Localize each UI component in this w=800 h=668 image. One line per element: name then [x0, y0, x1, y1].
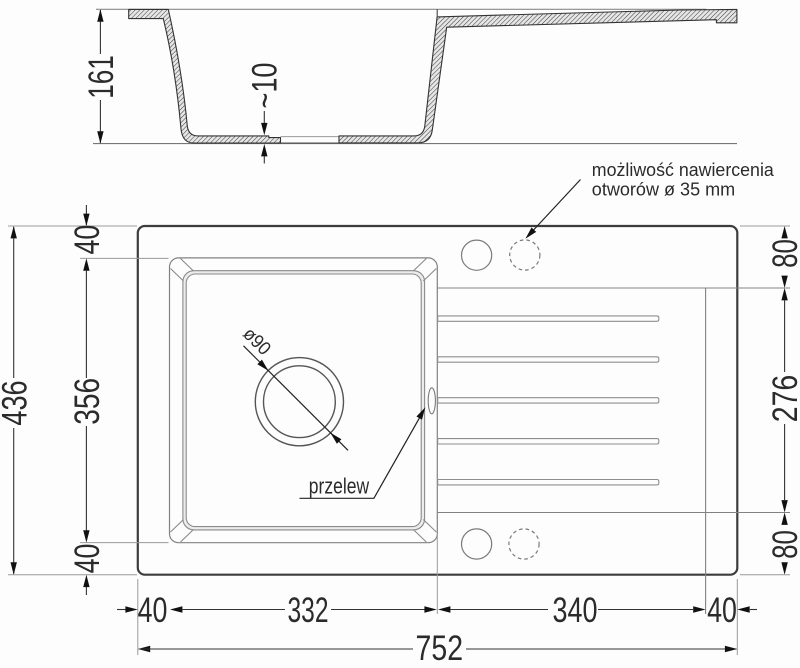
svg-text:40: 40 — [68, 544, 107, 574]
svg-text:40: 40 — [138, 591, 168, 630]
svg-text:161: 161 — [82, 55, 121, 99]
svg-text:436: 436 — [0, 380, 34, 425]
svg-text:40: 40 — [707, 591, 737, 630]
svg-text:~10: ~10 — [245, 63, 284, 109]
svg-text:możliwość nawiercenia: możliwość nawiercenia — [592, 159, 775, 180]
svg-text:przelew: przelew — [309, 474, 370, 499]
svg-text:276: 276 — [766, 375, 800, 423]
svg-text:340: 340 — [553, 591, 598, 630]
svg-text:40: 40 — [68, 225, 107, 255]
svg-text:356: 356 — [68, 378, 107, 425]
svg-text:332: 332 — [288, 591, 329, 630]
svg-text:752: 752 — [416, 629, 464, 668]
svg-text:80: 80 — [766, 530, 800, 559]
svg-text:80: 80 — [766, 239, 800, 268]
svg-text:otworów ø 35 mm: otworów ø 35 mm — [592, 179, 735, 200]
